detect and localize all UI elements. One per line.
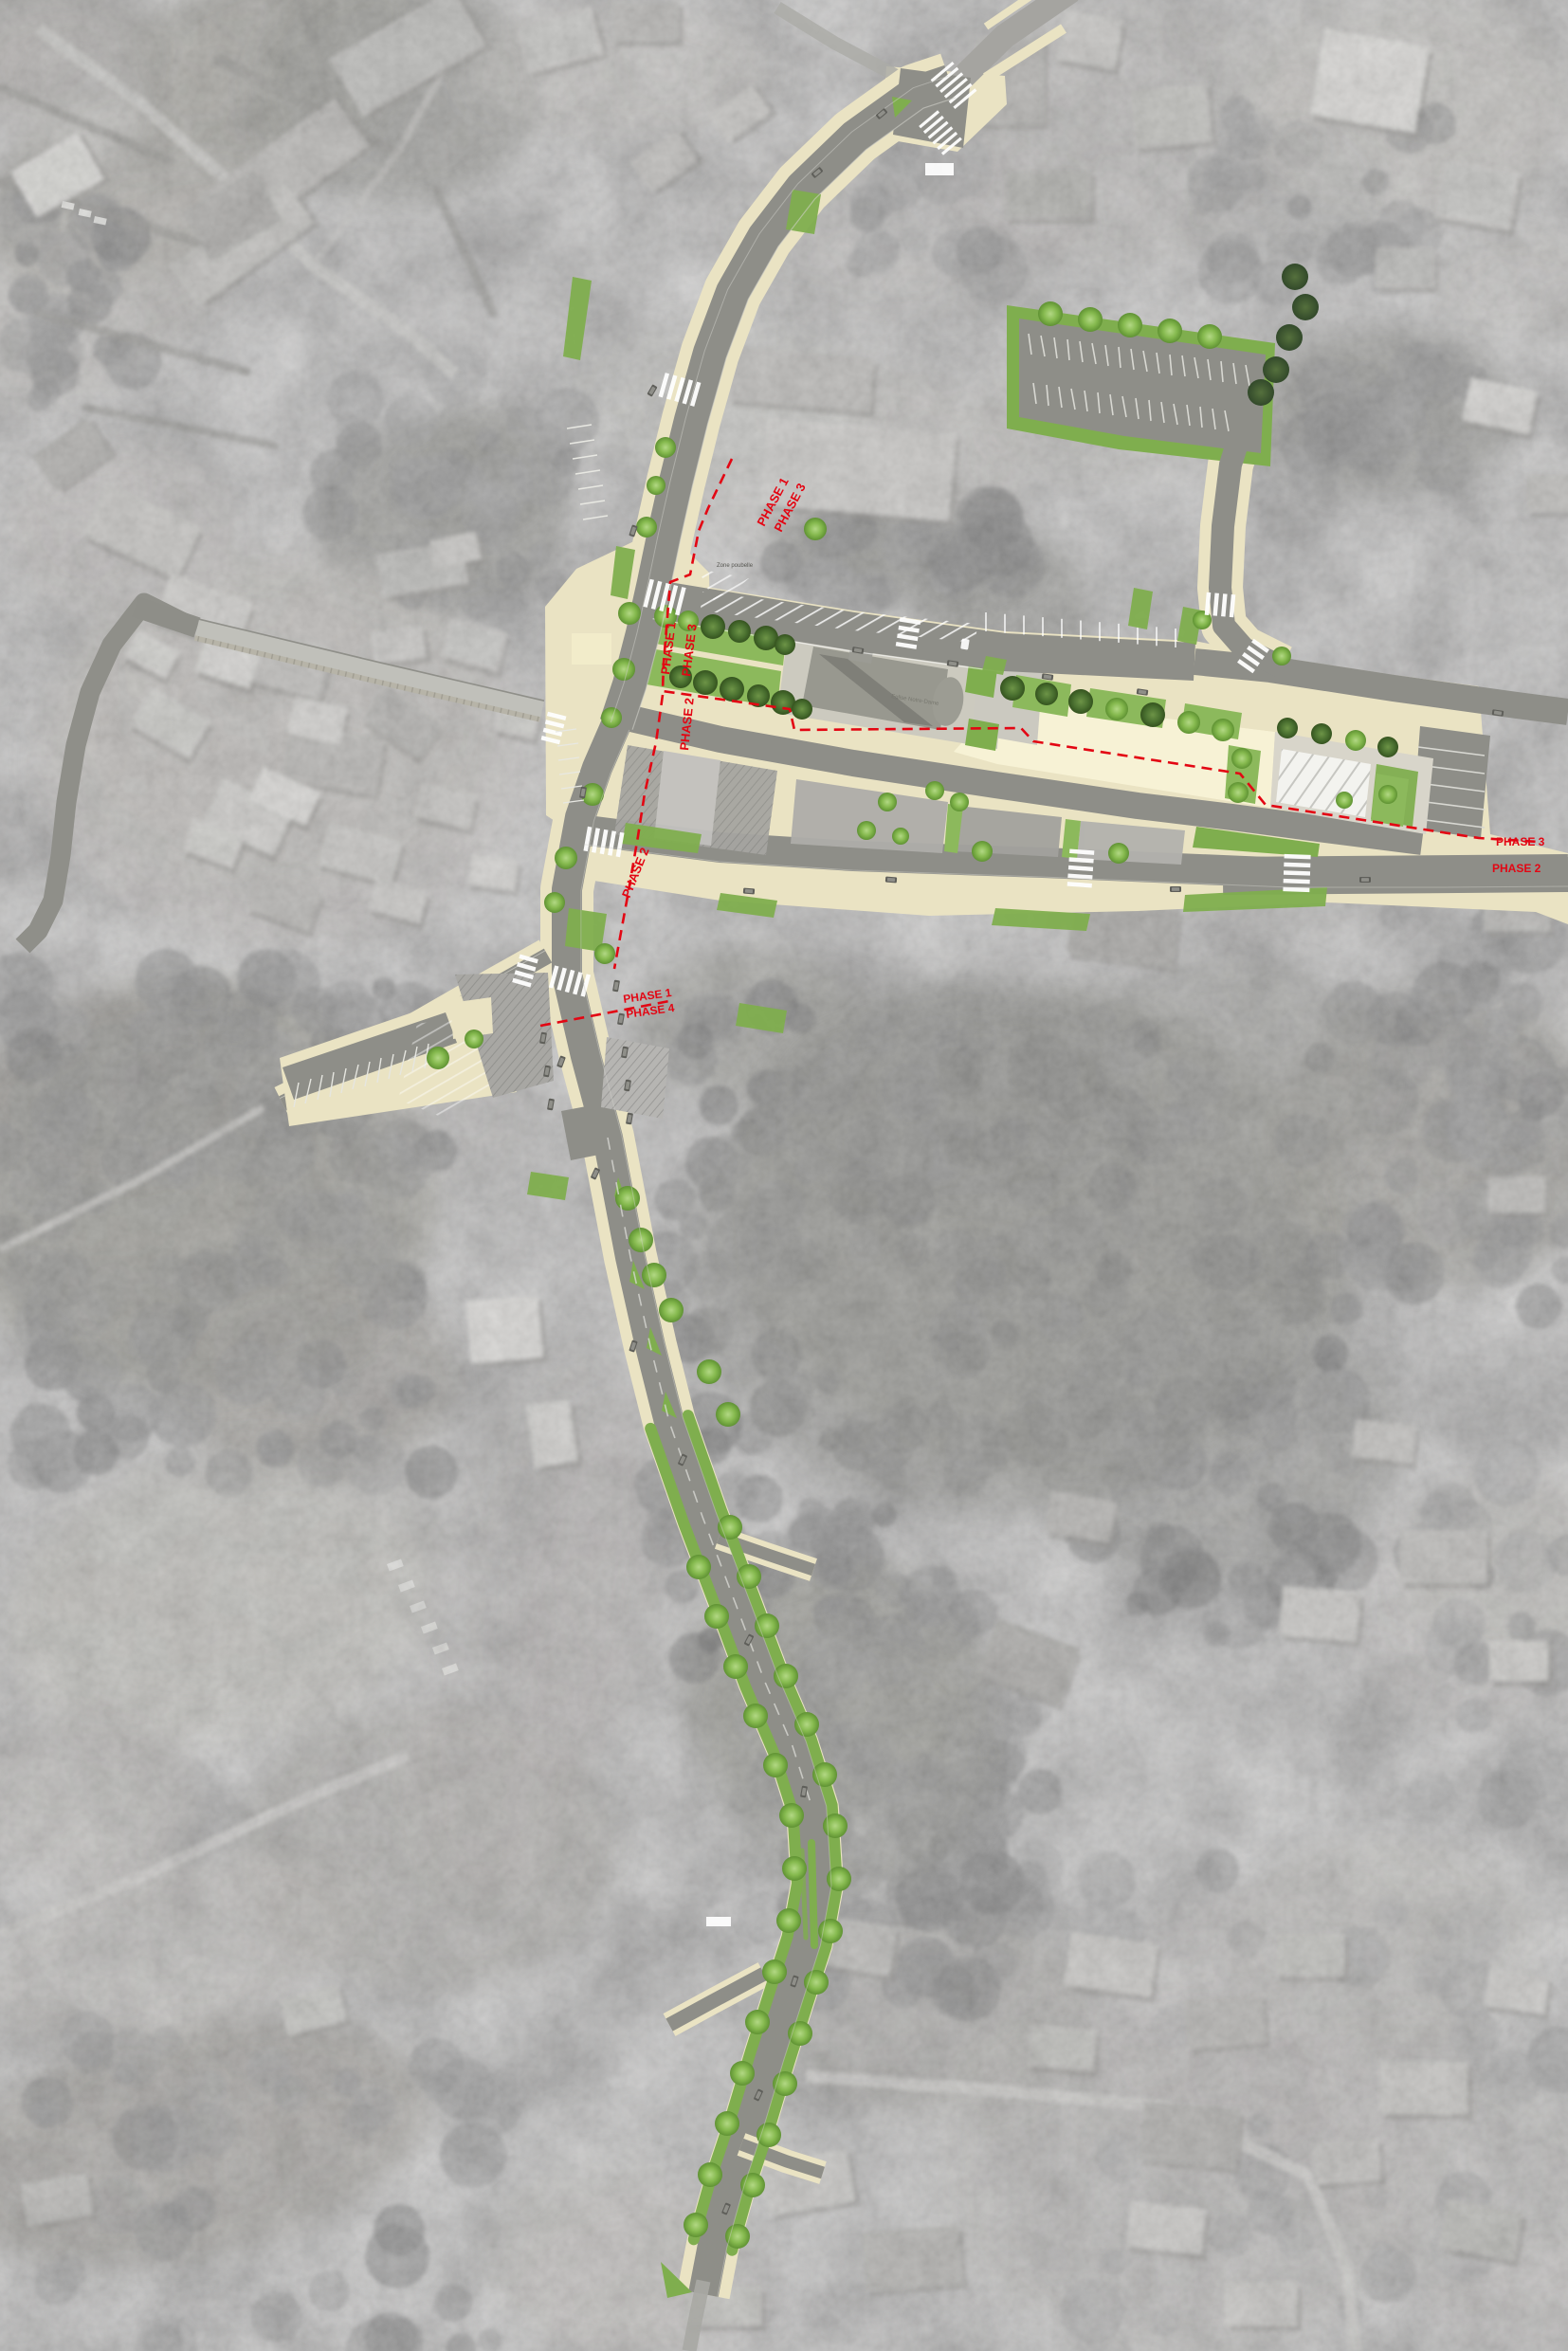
svg-text:PHASE 3: PHASE 3 (1496, 835, 1545, 848)
svg-text:PHASE 2: PHASE 2 (1492, 862, 1541, 875)
svg-text:Zone poubelle: Zone poubelle (717, 563, 754, 569)
